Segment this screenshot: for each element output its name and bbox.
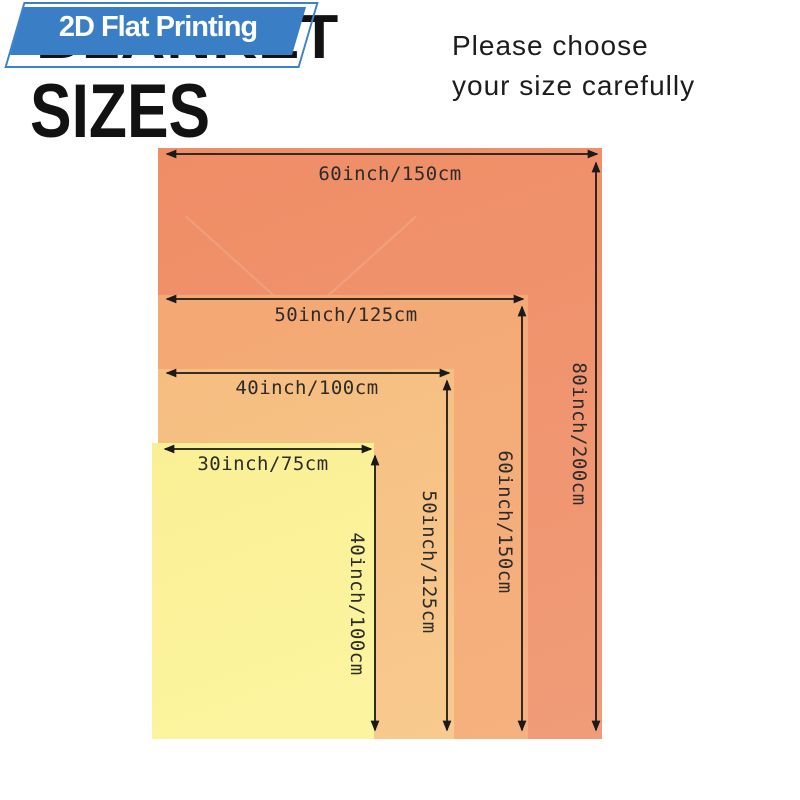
badge-label: 2D Flat Printing — [17, 11, 299, 44]
note-line-1: Please choose — [452, 26, 695, 66]
blanket-rect-30x40in — [152, 443, 374, 739]
page-title-sizes: SIZES — [30, 74, 210, 150]
height-label-80inch: 80inch/200cm — [568, 362, 590, 505]
width-label-50inch: 50inch/125cm — [274, 304, 417, 326]
height-label-40inch: 40inch/100cm — [346, 532, 368, 675]
note-line-2: your size carefully — [452, 66, 695, 106]
blanket-size-chart: 60inch/150cm 50inch/125cm 40inch/100cm 3… — [0, 0, 800, 800]
width-label-40inch: 40inch/100cm — [235, 377, 378, 399]
width-label-30inch: 30inch/75cm — [197, 453, 328, 475]
width-label-60inch: 60inch/150cm — [318, 163, 461, 185]
height-label-60inch: 60inch/150cm — [494, 450, 516, 593]
height-label-50inch: 50inch/125cm — [418, 490, 440, 633]
choose-size-note: Please choose your size carefully — [452, 26, 695, 106]
